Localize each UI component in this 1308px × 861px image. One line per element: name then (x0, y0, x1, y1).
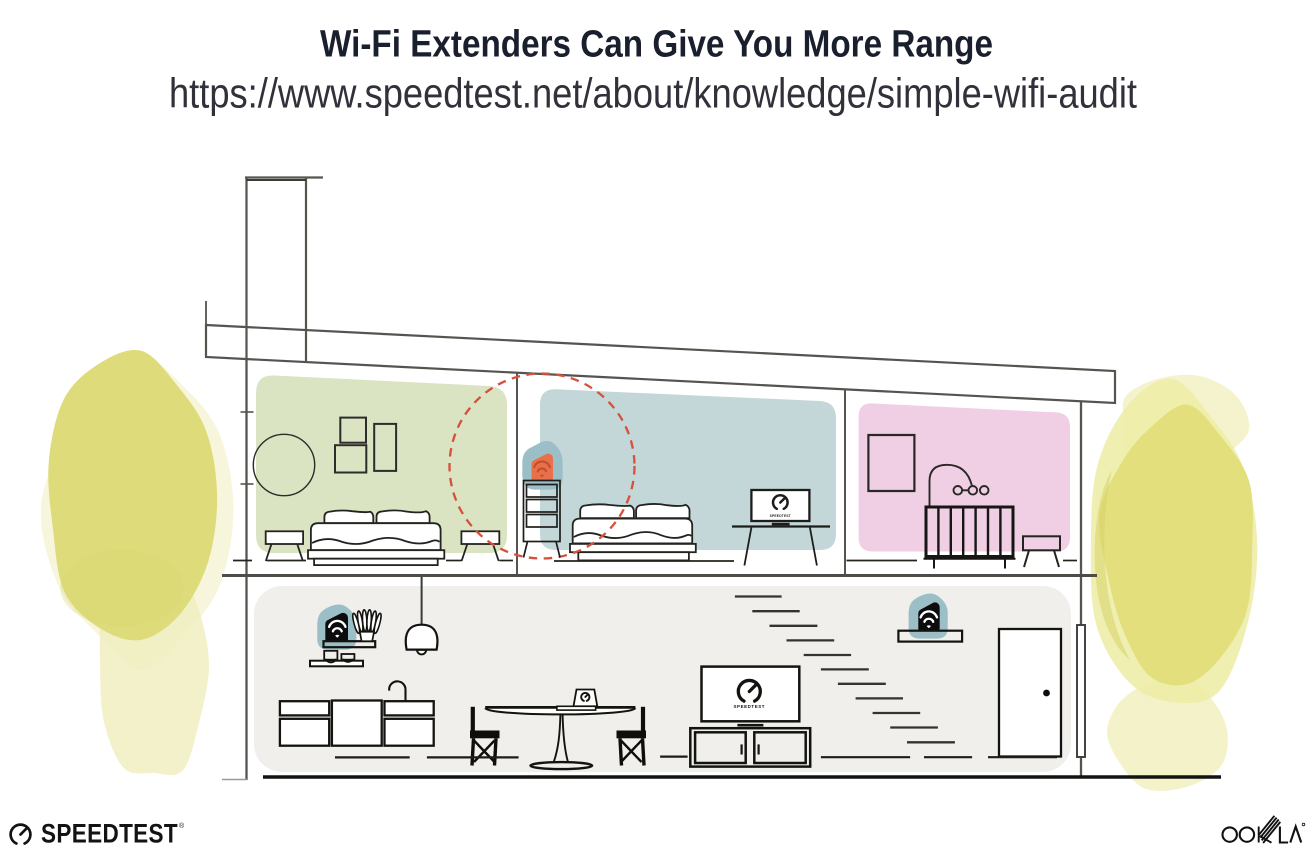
svg-text:Wi-Fi Extenders Can Give You M: Wi-Fi Extenders Can Give You More Range (320, 24, 993, 66)
svg-text:SPEEDTEST: SPEEDTEST (734, 704, 766, 709)
svg-text:SPEEDTEST: SPEEDTEST (41, 819, 178, 849)
svg-text:https://www.speedtest.net/abou: https://www.speedtest.net/about/knowledg… (169, 70, 1137, 117)
svg-text:SPEEDTEST: SPEEDTEST (770, 514, 791, 518)
svg-text:®: ® (179, 822, 185, 830)
